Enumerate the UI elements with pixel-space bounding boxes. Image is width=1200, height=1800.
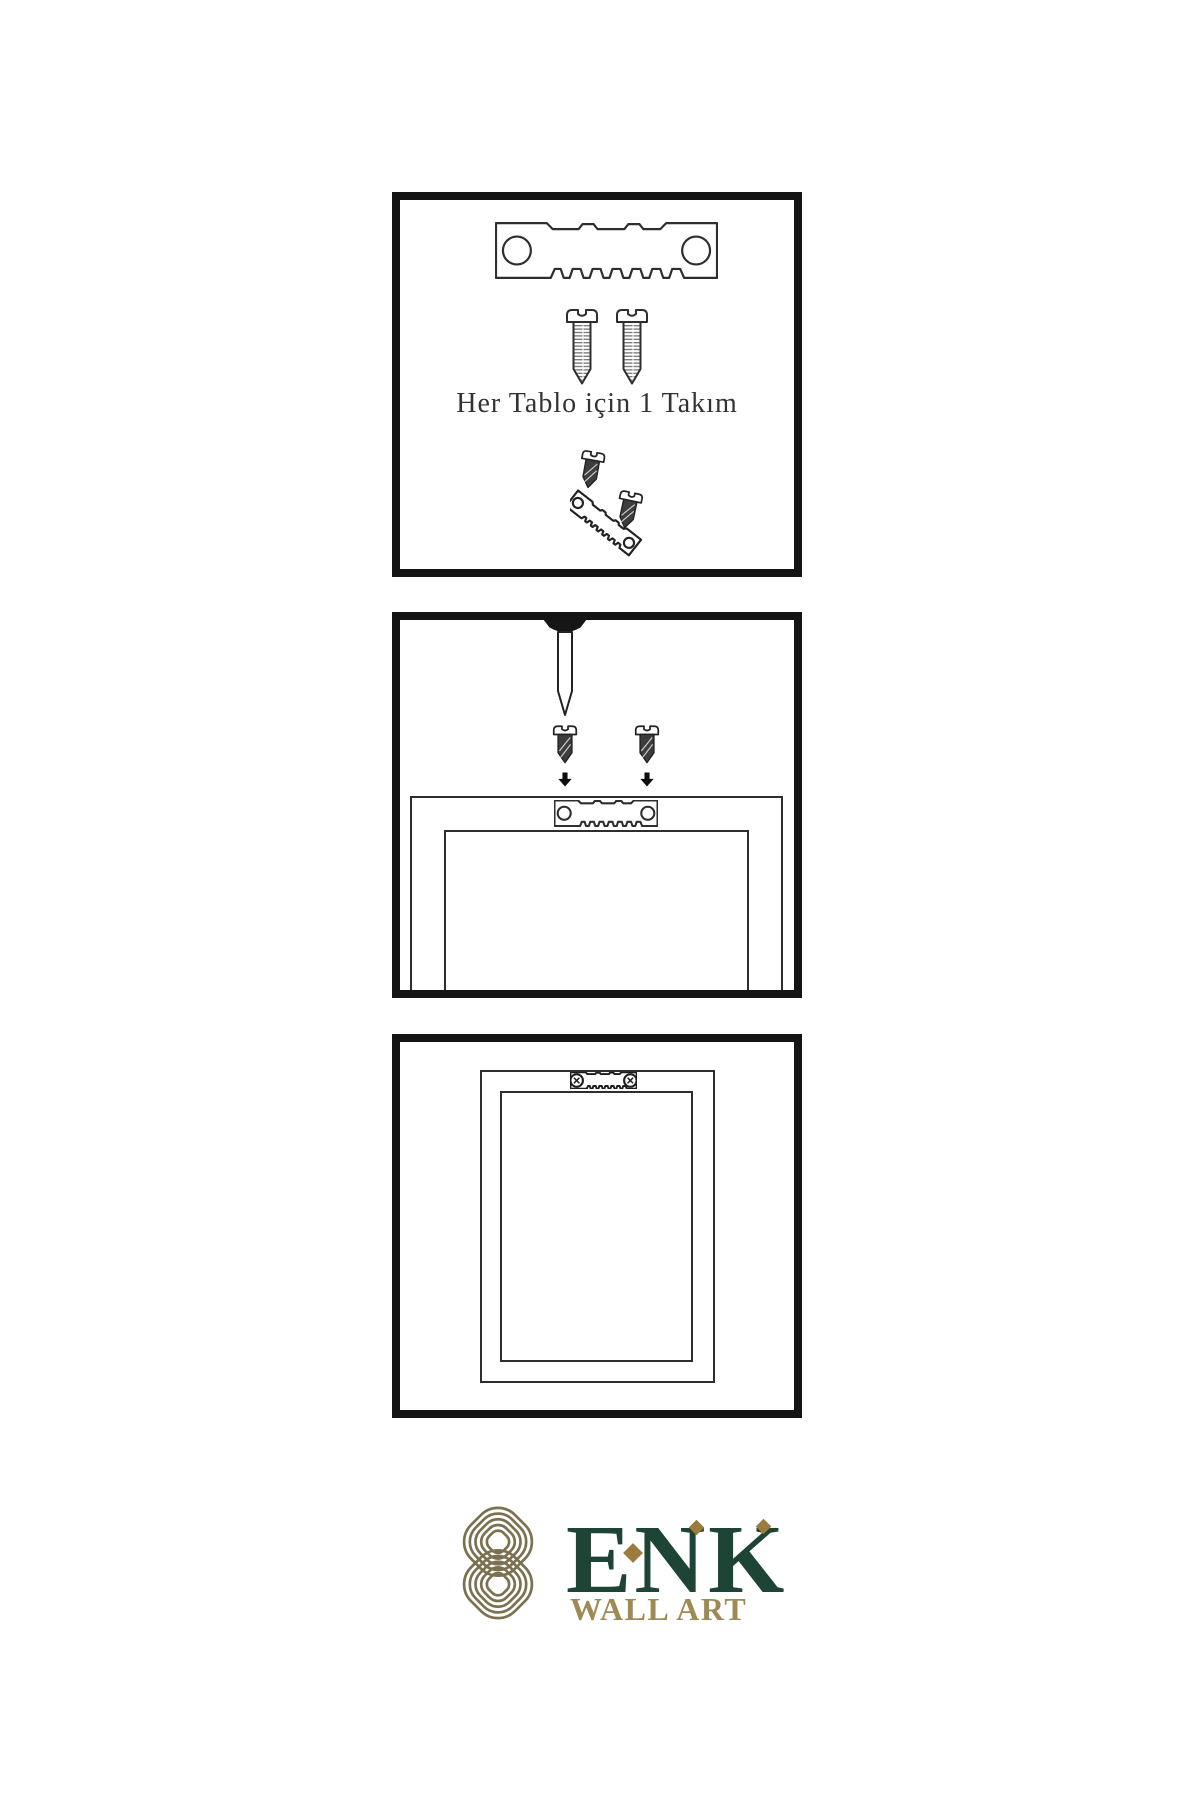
arrow-down-icon <box>558 770 572 789</box>
knot-logo-icon <box>433 1498 563 1628</box>
frame-back-inner-edge <box>500 1091 693 1362</box>
diamond-accent-icon <box>689 1520 705 1536</box>
brand-subtitle: WALL ART <box>570 1592 747 1626</box>
mounted-hanger-with-screws-icon <box>570 1072 637 1089</box>
arrow-down-icon <box>640 770 654 789</box>
kit-caption: Her Tablo için 1 Takım <box>400 388 794 420</box>
sawtooth-hanger-icon <box>554 800 658 827</box>
diamond-accent-icon <box>623 1543 643 1563</box>
panel-step-1-kit-contents: Her Tablo için 1 Takım <box>392 192 802 577</box>
brand-name: ENK <box>566 1510 787 1610</box>
screw-icon <box>615 307 649 385</box>
sawtooth-hanger-icon <box>495 222 718 279</box>
nail-icon <box>543 619 587 719</box>
screw-icon <box>552 724 578 764</box>
tilted-hanger-with-screws-icon <box>570 446 660 558</box>
frame-back-inner-edge <box>444 830 749 998</box>
screw-icon <box>565 307 599 385</box>
screw-icon <box>634 724 660 764</box>
panel-step-3-mounted-frame <box>392 1034 802 1418</box>
panel-step-2-attach-hanger <box>392 612 802 998</box>
diamond-accent-icon <box>756 1519 772 1535</box>
